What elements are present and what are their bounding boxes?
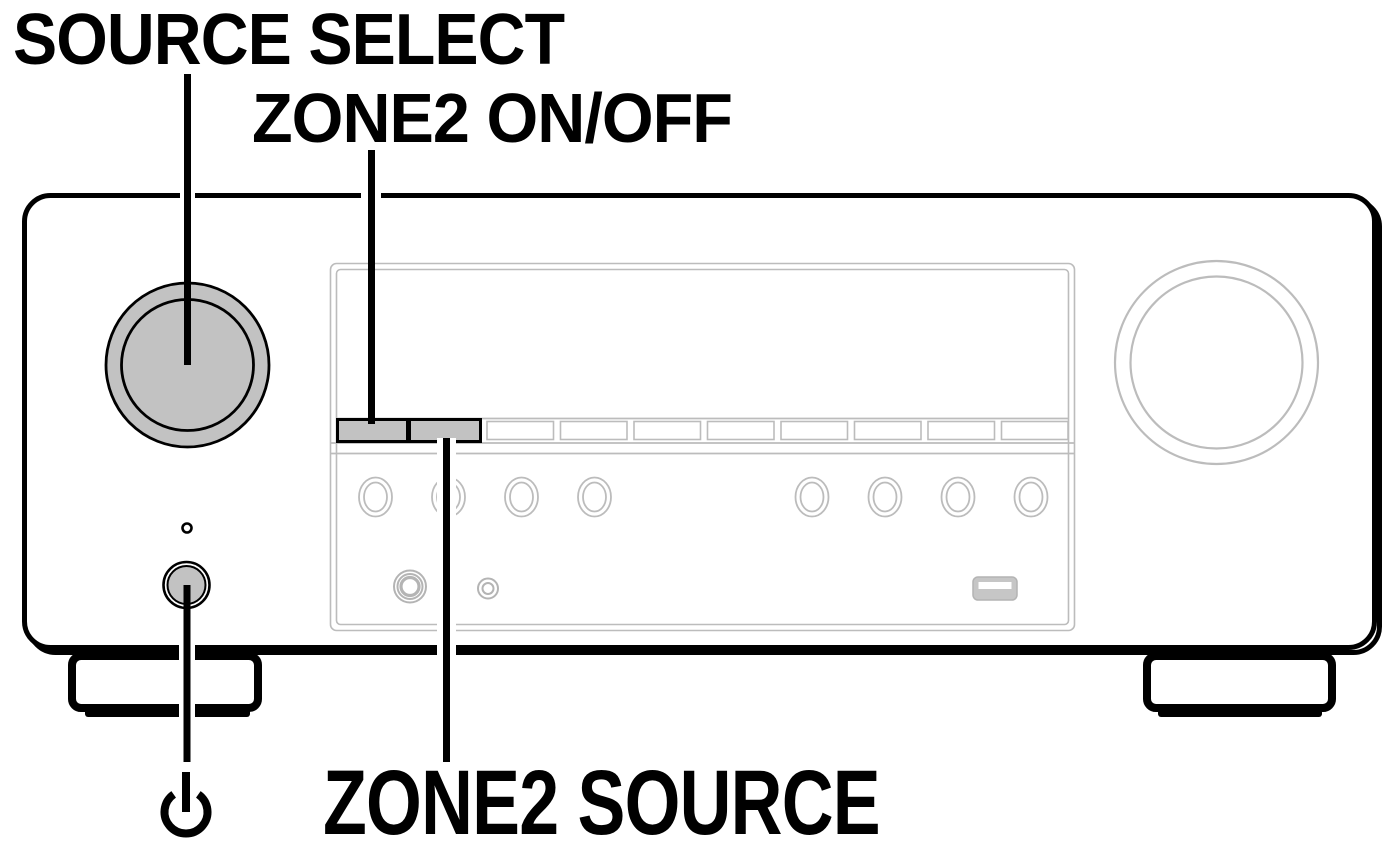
leader-line-zone2-on-off bbox=[368, 150, 375, 424]
volume-knob bbox=[1115, 261, 1318, 464]
small-button bbox=[561, 422, 628, 440]
right-foot bbox=[1147, 656, 1332, 708]
zone2-source-label: ZONE2 SOURCE bbox=[323, 757, 880, 849]
left-foot bbox=[72, 656, 258, 708]
leader-line-power bbox=[184, 585, 191, 762]
source-select-label: SOURCE SELECT bbox=[13, 4, 564, 76]
zone2-on-off-label: ZONE2 ON/OFF bbox=[252, 83, 732, 153]
power-standby-icon bbox=[165, 772, 208, 834]
usb-port bbox=[973, 577, 1017, 600]
small-button bbox=[855, 422, 922, 440]
small-button bbox=[487, 422, 554, 440]
small-button bbox=[928, 422, 995, 440]
receiver-front-panel-figure: SOURCE SELECT ZONE2 ON/OFF ZONE2 SOURCE bbox=[0, 0, 1400, 860]
power-led bbox=[183, 524, 192, 533]
small-button bbox=[1002, 422, 1069, 440]
small-button bbox=[634, 422, 701, 440]
small-button bbox=[708, 422, 775, 440]
leader-line-zone2-source bbox=[443, 438, 450, 762]
small-button bbox=[781, 422, 848, 440]
leader-line-source-select bbox=[184, 74, 191, 365]
